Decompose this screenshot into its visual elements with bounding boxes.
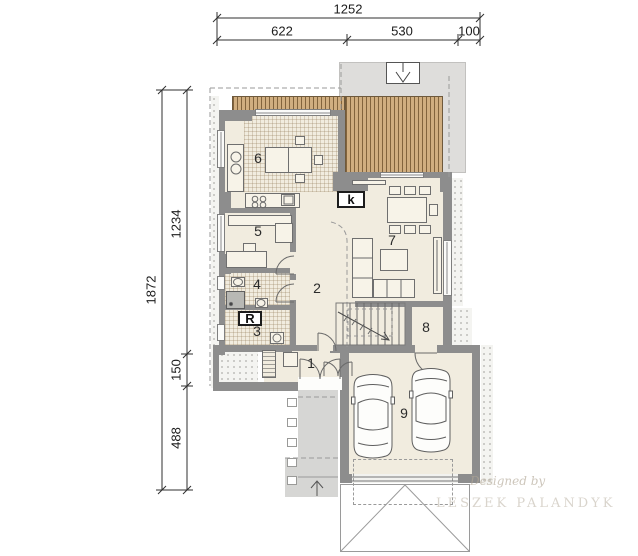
room-label-4: 4 [253, 276, 261, 292]
fireplace-label: k [347, 192, 354, 207]
dim-top-total: 1252 [334, 2, 363, 17]
room-label-6: 6 [254, 150, 262, 166]
dim-top-seg3: 100 [458, 24, 480, 39]
room-label-9: 9 [400, 405, 408, 421]
room-label-2: 2 [313, 280, 321, 296]
room-label-3: 3 [253, 323, 261, 339]
room-label-5: 5 [254, 223, 262, 239]
floor-plan: k R [0, 0, 638, 556]
watermark-line2: LESZEK PALANDYK [436, 496, 615, 511]
dim-top-seg2: 530 [391, 24, 413, 39]
dim-top-seg1: 622 [271, 24, 293, 39]
walkway-direction-arrow [298, 477, 338, 496]
car [352, 375, 395, 459]
room-label-8: 8 [422, 319, 430, 335]
dim-left-seg3: 488 [169, 427, 184, 449]
fireplace-marker: k [337, 191, 365, 208]
car [410, 369, 453, 453]
dim-left-total: 1872 [144, 276, 159, 305]
room-label-7: 7 [388, 232, 396, 248]
staircase [336, 303, 405, 345]
room-label-1: 1 [307, 355, 315, 371]
entry-step-arrow-icon [396, 63, 410, 82]
dim-left-seg2: 150 [169, 359, 184, 381]
garage-door-lines [352, 477, 458, 481]
watermark-line1: Designed by [470, 474, 545, 488]
mezzanine-void-outline [331, 222, 347, 350]
driveway-apron-lines [341, 485, 469, 551]
dim-left-seg1: 1234 [169, 210, 184, 239]
plan-linework [0, 0, 638, 556]
